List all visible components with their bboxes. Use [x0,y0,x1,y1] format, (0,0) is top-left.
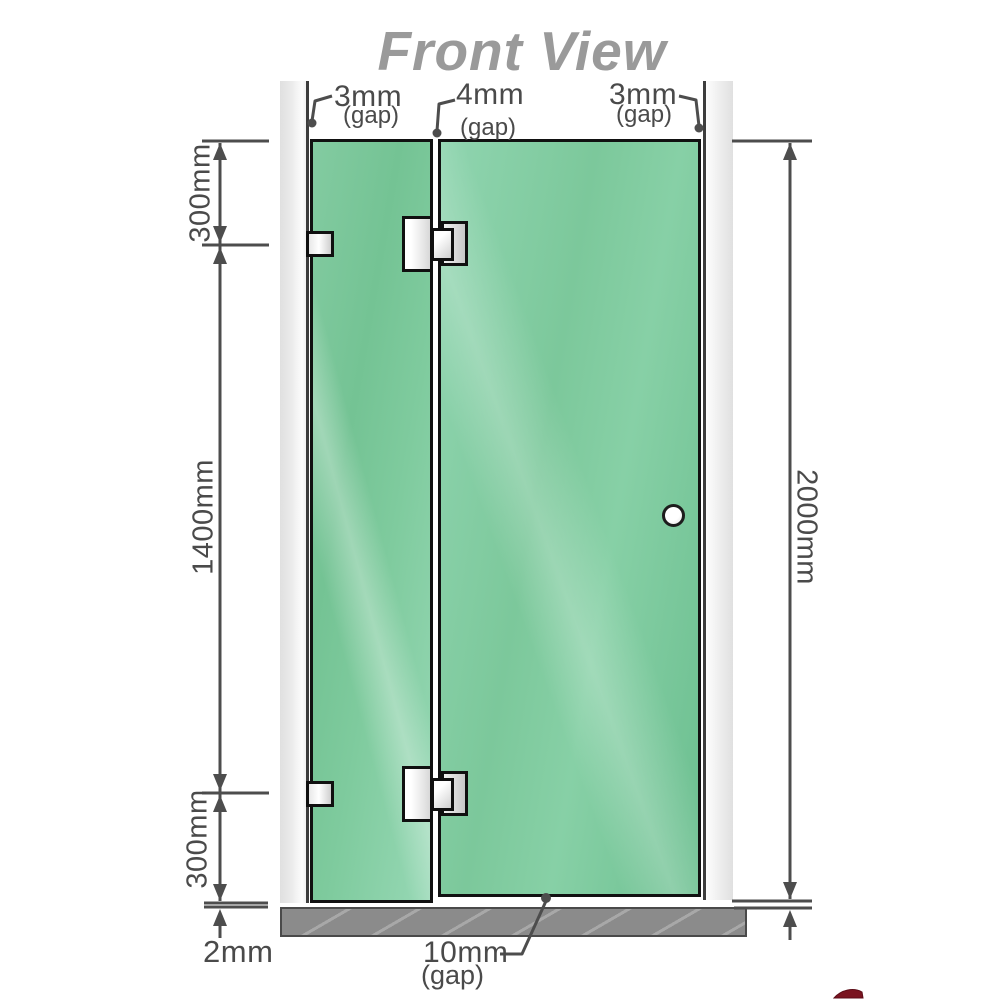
gap-top-left-note: (gap) [343,104,399,128]
bottom-hinge [402,766,468,822]
gap-top-right-note: (gap) [616,103,672,127]
bottom-gap-note: (gap) [421,962,484,989]
arrowhead [213,884,227,901]
hinge-plate-left [402,766,433,822]
leader-dot [433,129,442,138]
leader-gap-top-middle [437,100,455,131]
leader-gap-top-left [312,96,332,121]
gap-top-middle-note: (gap) [460,116,516,140]
diagram-title: Front View [362,24,682,79]
hinge-plate-left [402,216,433,272]
top-wall-bracket [306,231,334,257]
bottom-wall-bracket [306,781,334,807]
arrowhead [213,774,227,791]
height-total-label: 2000mm [792,469,821,585]
floor-base [280,907,747,937]
hinge-clamp [431,778,454,811]
hinge-clamp [431,228,454,261]
arrowhead [213,247,227,264]
top-hinge [402,216,468,272]
arrowhead [783,910,797,927]
leader-gap-top-right [679,96,699,126]
floor-clearance-label: 2mm [203,936,273,967]
gap-top-middle-label: 4mm [456,80,524,110]
logo-swoosh [834,990,863,998]
height-bottom-segment-label: 300mm [184,789,213,888]
front-view-diagram: Front View [0,0,1000,1000]
arrowhead [783,882,797,899]
arrowhead [213,795,227,812]
arrowhead [783,143,797,160]
height-middle-segment-label: 1400mm [190,459,219,575]
height-top-segment-label: 300mm [187,143,216,242]
door-handle-knob [662,504,685,527]
right-wall-channel [703,81,733,900]
left-wall-channel [280,81,309,903]
arrowhead [213,909,227,926]
